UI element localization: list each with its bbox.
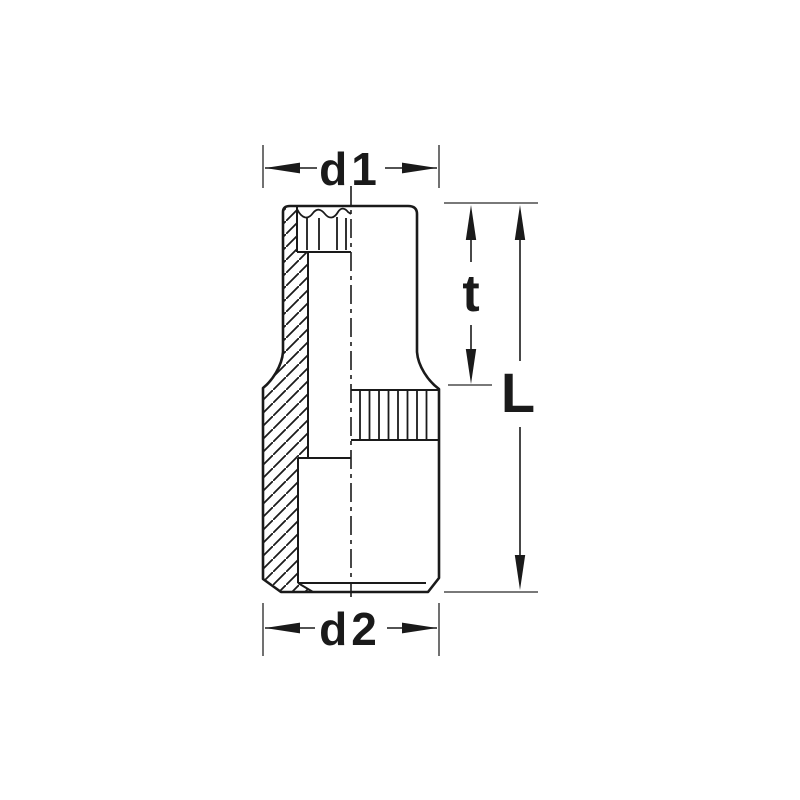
t-arrow-up-icon: [466, 205, 476, 240]
t-arrow-down-icon: [466, 349, 476, 384]
L-arrow-up-icon: [515, 205, 525, 240]
dim-label-d1: d1: [319, 143, 381, 195]
drawing-canvas: d1 d2 t L: [0, 0, 800, 800]
dimension-d2: d2: [263, 603, 439, 656]
dim-label-L: L: [501, 361, 535, 424]
socket-body: [263, 186, 439, 597]
L-arrow-down-icon: [515, 555, 525, 590]
dim-label-t: t: [462, 265, 479, 323]
socket-technical-drawing: d1 d2 t L: [0, 0, 800, 800]
dimension-d1: d1: [263, 143, 439, 195]
d1-arrow-right-icon: [402, 163, 437, 174]
dim-label-d2: d2: [319, 603, 381, 655]
dimension-L: L: [501, 205, 535, 590]
d1-arrow-left-icon: [265, 163, 300, 174]
d2-arrow-left-icon: [265, 623, 300, 634]
d2-arrow-right-icon: [402, 623, 437, 634]
dimension-t: t: [462, 205, 479, 384]
